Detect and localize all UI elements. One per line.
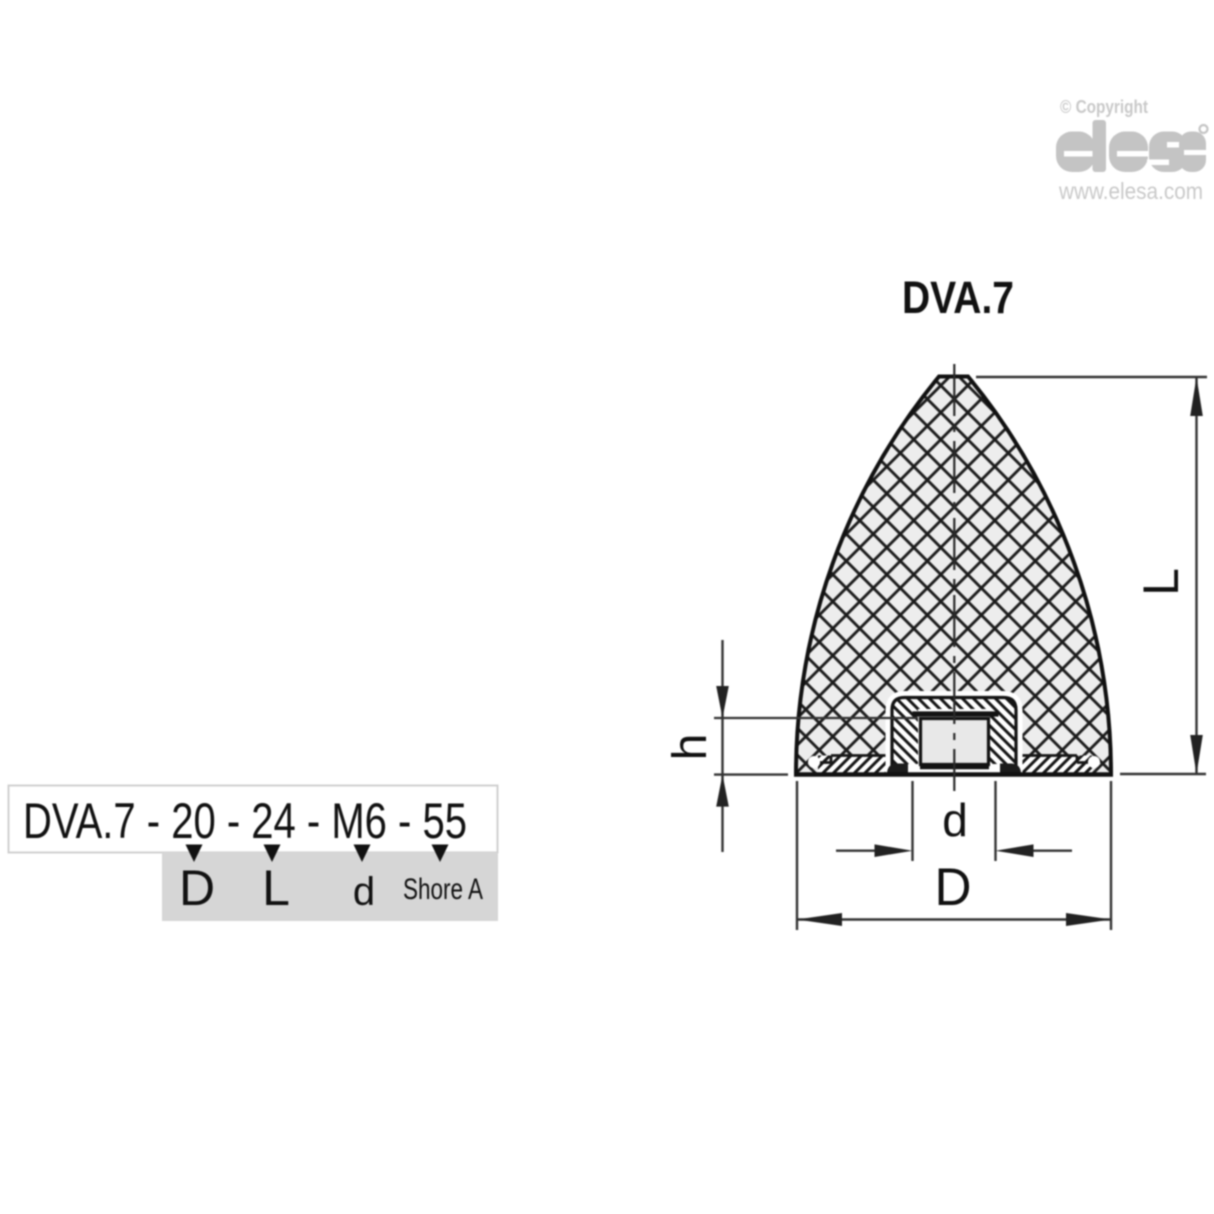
svg-text:DVA.7 - 20 - 24 - M6 - 55: DVA.7 - 20 - 24 - M6 - 55 [23, 793, 467, 849]
svg-text:www.elesa.com: www.elesa.com [1058, 178, 1203, 204]
svg-text:d: d [353, 870, 375, 914]
svg-text:d: d [942, 794, 968, 846]
svg-text:h: h [664, 734, 717, 761]
svg-text:© Copyright: © Copyright [1060, 97, 1148, 117]
svg-text:L: L [262, 860, 290, 916]
svg-text:D: D [935, 858, 972, 917]
svg-text:DVA.7: DVA.7 [902, 272, 1014, 323]
svg-text:Shore A: Shore A [403, 873, 483, 906]
svg-text:L: L [1133, 568, 1189, 596]
svg-text:D: D [179, 860, 215, 916]
